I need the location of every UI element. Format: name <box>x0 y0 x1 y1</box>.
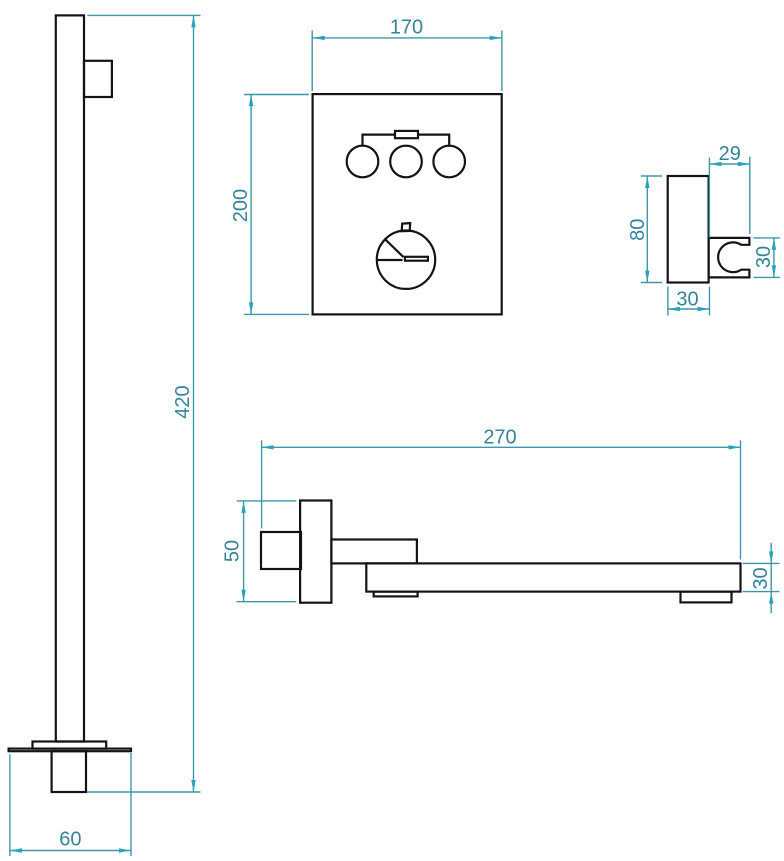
svg-text:30: 30 <box>753 246 775 268</box>
svg-text:80: 80 <box>627 219 649 241</box>
svg-text:30: 30 <box>750 567 772 589</box>
svg-text:200: 200 <box>230 189 252 222</box>
svg-text:270: 270 <box>483 427 516 449</box>
svg-text:420: 420 <box>172 385 194 418</box>
svg-text:170: 170 <box>390 17 423 39</box>
svg-text:60: 60 <box>59 829 81 851</box>
svg-text:29: 29 <box>719 143 741 165</box>
svg-text:50: 50 <box>222 540 244 562</box>
svg-text:30: 30 <box>676 289 698 311</box>
